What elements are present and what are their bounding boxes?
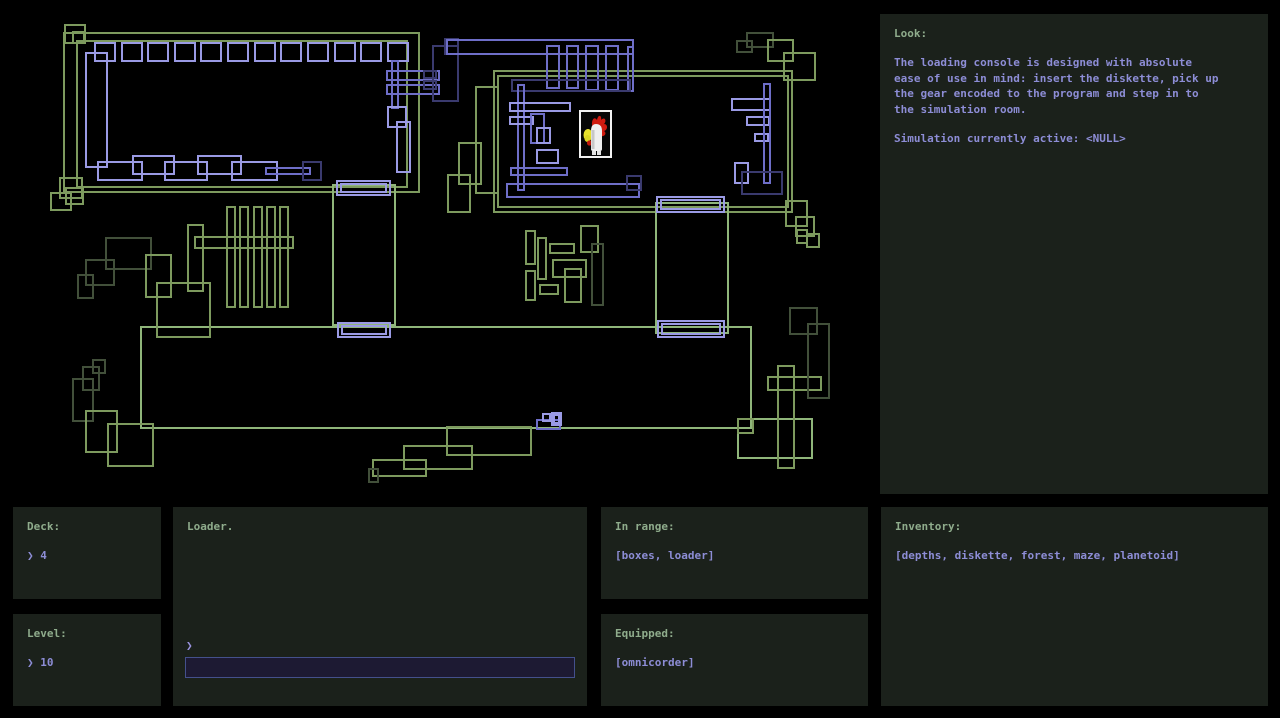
equipped-value: [omnicorder]	[601, 640, 868, 669]
blueprint-map	[0, 0, 872, 500]
level-title: Level:	[13, 614, 161, 640]
inventory-panel: Inventory: [depths, diskette, forest, ma…	[881, 507, 1268, 706]
inventory-title: Inventory:	[881, 507, 1268, 533]
map-canvas	[0, 0, 872, 500]
deck-value: ❯ 4	[13, 533, 161, 562]
level-value: ❯ 10	[13, 640, 161, 669]
in-range-value: [boxes, loader]	[601, 533, 868, 562]
look-title: Look:	[880, 14, 1268, 40]
command-prompt-chevron: ❯	[186, 639, 193, 652]
level-panel: Level: ❯ 10	[13, 614, 161, 706]
map-wireframe-rooms	[51, 25, 829, 482]
player-chicken-sprite	[580, 111, 611, 157]
look-panel: Look: The loading console is designed wi…	[880, 14, 1268, 494]
in-range-panel: In range: [boxes, loader]	[601, 507, 868, 599]
deck-panel: Deck: ❯ 4	[13, 507, 161, 599]
loader-title: Loader.	[173, 507, 587, 533]
equipped-panel: Equipped: [omnicorder]	[601, 614, 868, 706]
deck-title: Deck:	[13, 507, 161, 533]
equipped-title: Equipped:	[601, 614, 868, 640]
in-range-title: In range:	[601, 507, 868, 533]
look-description: The loading console is designed with abs…	[880, 40, 1268, 117]
game-screen: { "colors": { "background": "#000000", "…	[0, 0, 1280, 718]
loader-panel: Loader. ❯	[173, 507, 587, 706]
command-input[interactable]	[185, 657, 575, 678]
simulation-status: Simulation currently active: <NULL>	[880, 117, 1268, 145]
inventory-value: [depths, diskette, forest, maze, planeto…	[881, 533, 1268, 562]
